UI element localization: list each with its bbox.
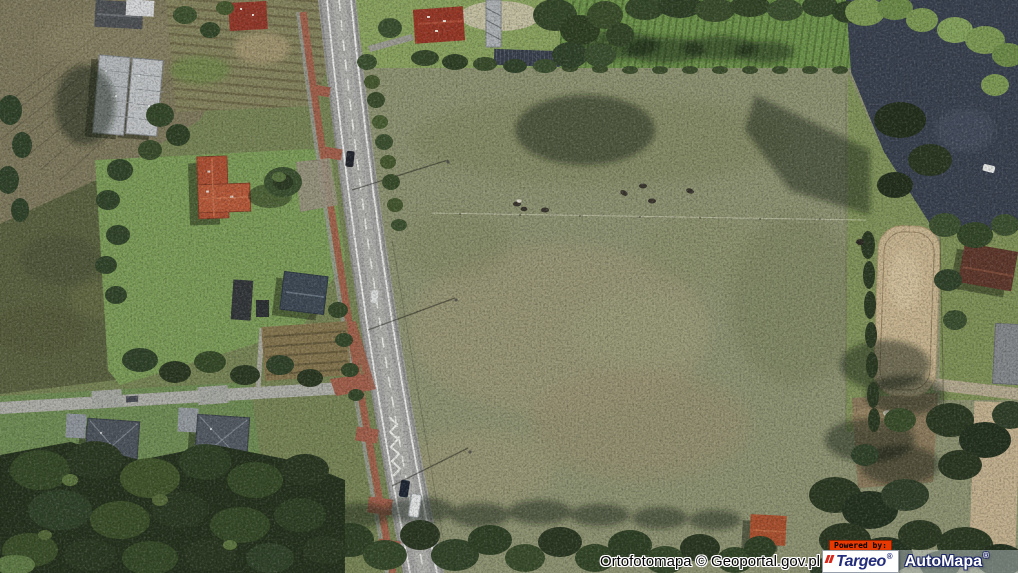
automapa-registered-mark: ® (983, 551, 989, 571)
brand-logos: Targeo ® AutoMapa ® (822, 550, 1018, 573)
targeo-logo[interactable]: Targeo ® (822, 550, 899, 573)
targeo-quote-mark-icon (826, 555, 834, 563)
targeo-registered-mark: ® (887, 552, 893, 561)
aerial-imagery[interactable] (0, 0, 1018, 573)
grain-overlay (0, 0, 1018, 573)
automapa-logo[interactable]: AutoMapa ® (905, 553, 989, 571)
targeo-wordmark: Targeo (836, 553, 886, 571)
map-viewport[interactable]: Ortofotomapa © Geoportal.gov.pl Powered … (0, 0, 1018, 573)
automapa-wordmark: AutoMapa (905, 553, 982, 571)
map-attribution: Ortofotomapa © Geoportal.gov.pl (600, 553, 820, 570)
